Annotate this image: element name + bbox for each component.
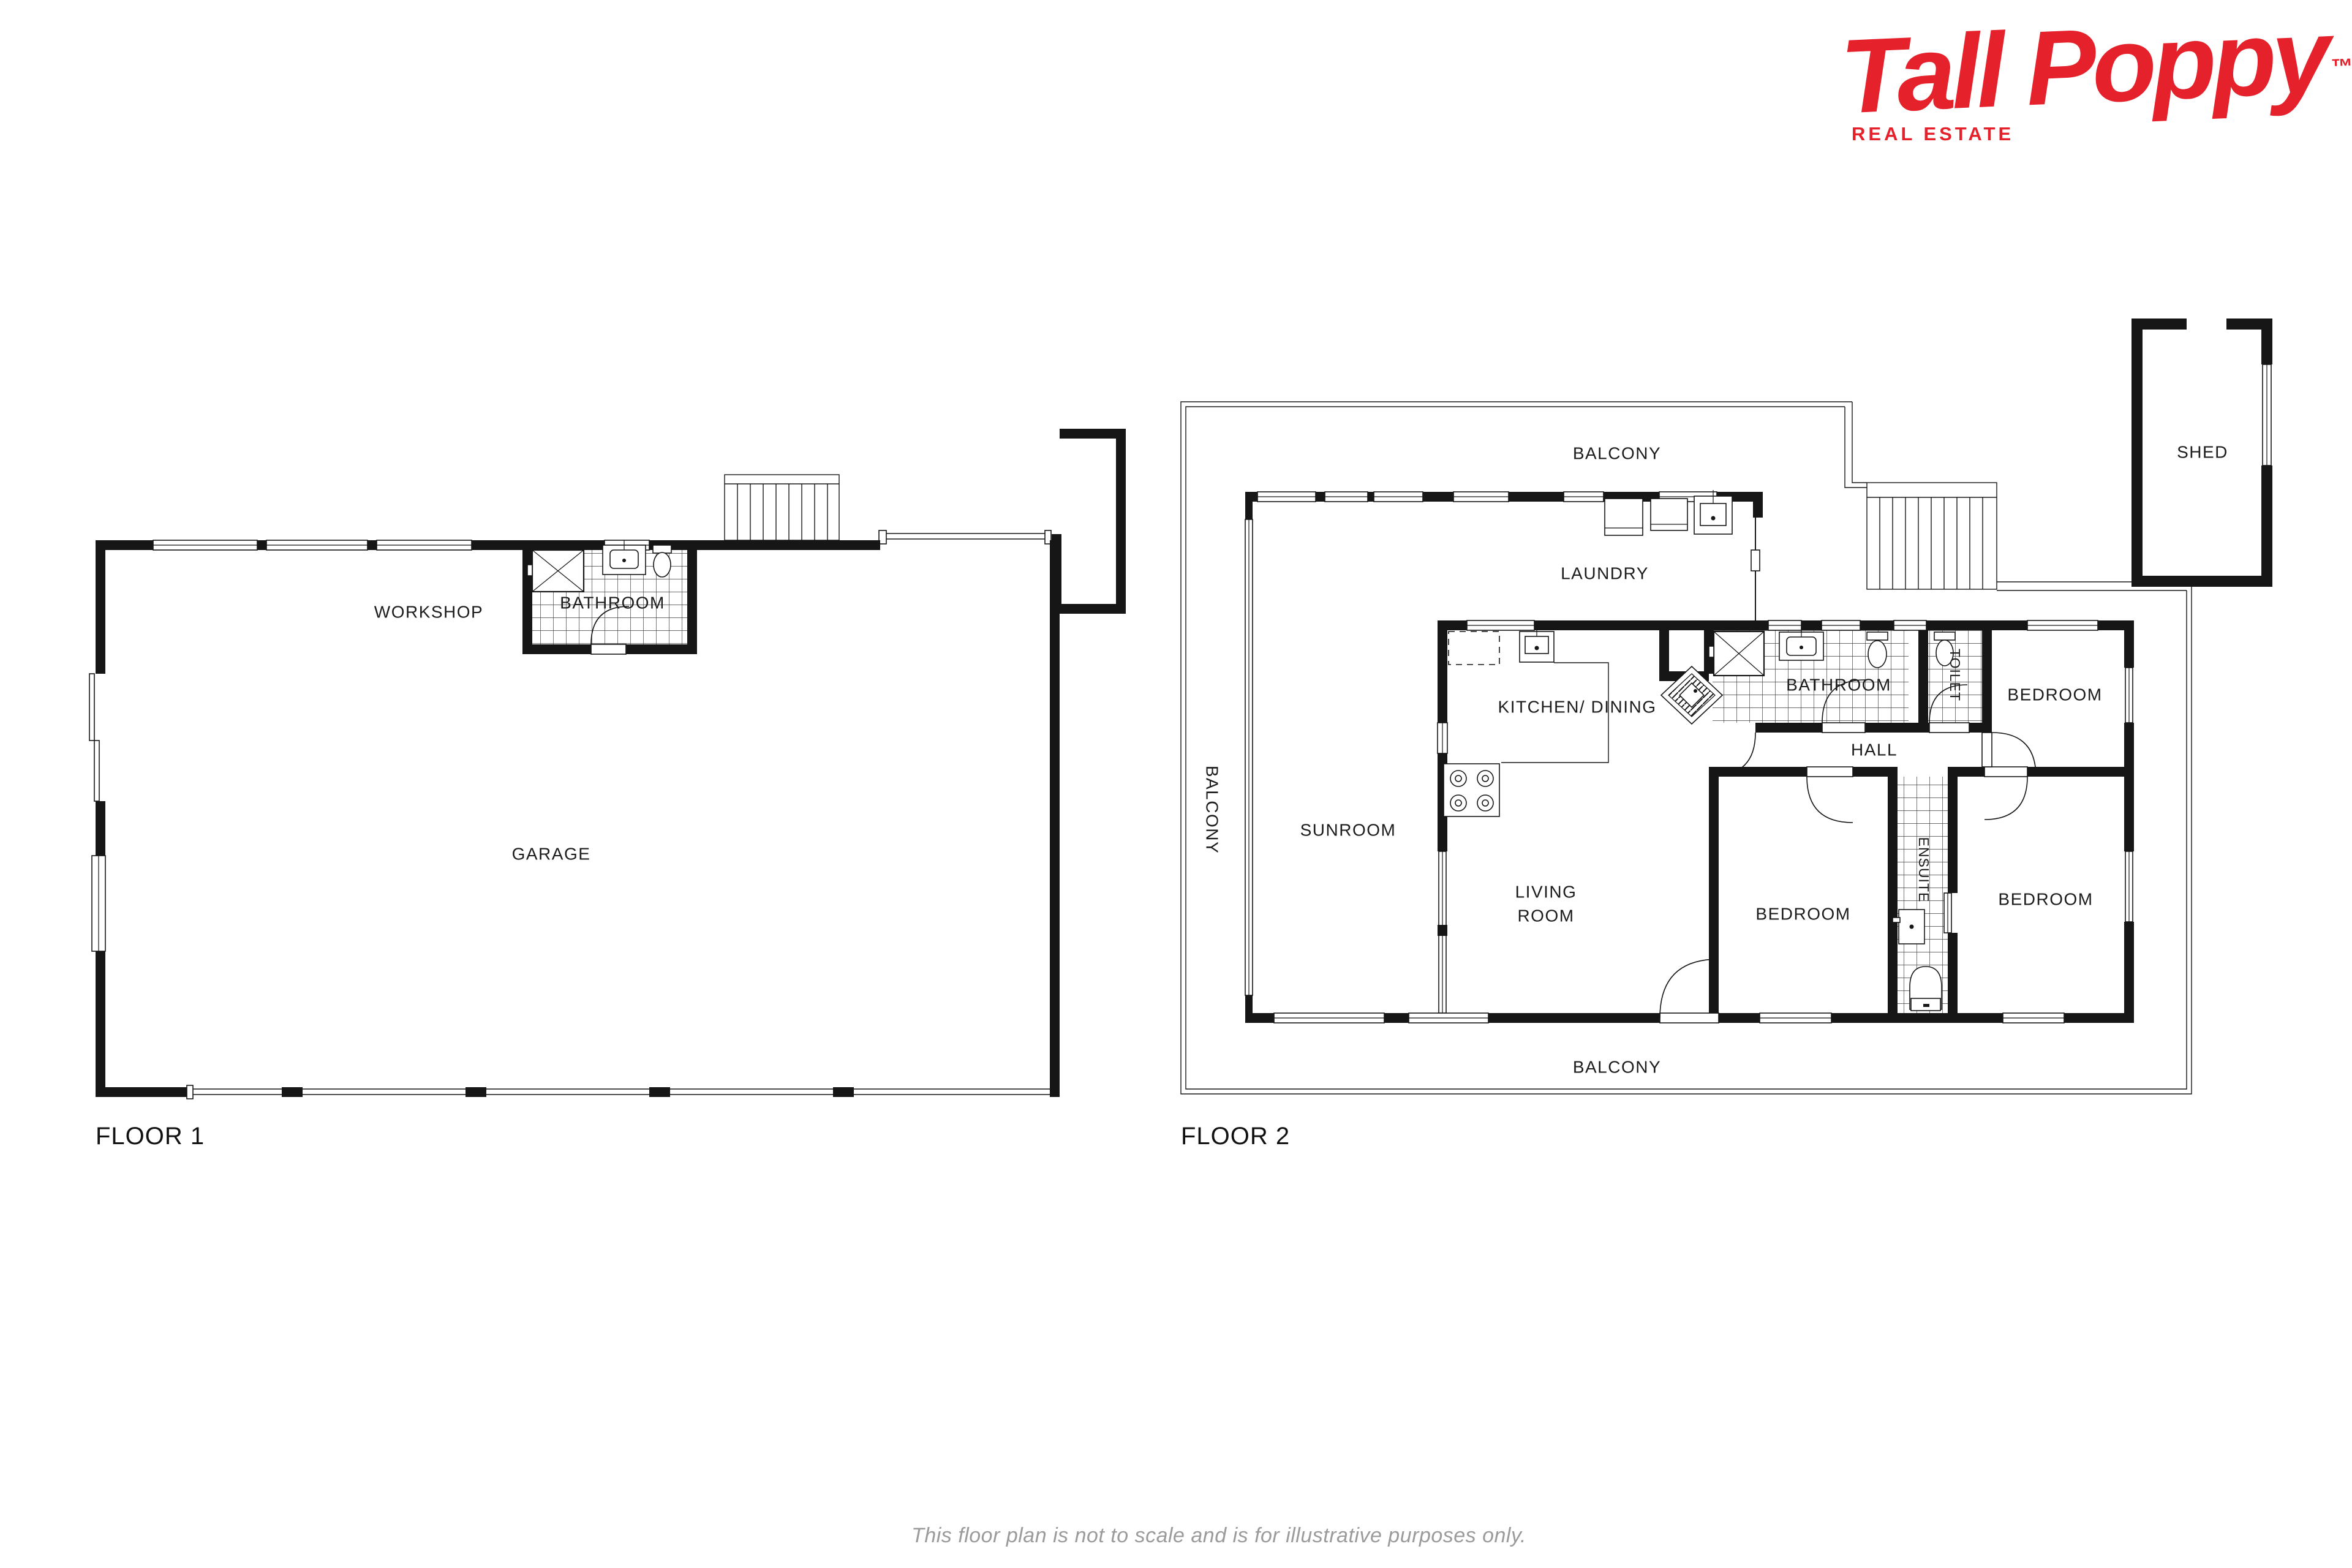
room-label-hall: HALL xyxy=(1851,740,1898,759)
floor1-title: FLOOR 1 xyxy=(96,1123,205,1150)
floor2-plan: SHED xyxy=(1181,318,2272,1150)
room-label-sunroom: SUNROOM xyxy=(1300,820,1396,839)
shower-icon xyxy=(527,550,584,592)
floor1-railing xyxy=(879,530,1051,544)
fridge-space-dashed xyxy=(1449,631,1499,665)
room-label-balcony-left: BALCONY xyxy=(1203,766,1222,854)
floor1-stairs-icon xyxy=(725,475,839,540)
room-label-balcony-bottom: BALCONY xyxy=(1573,1057,1661,1076)
ensuite-toilet-icon xyxy=(1910,967,1942,1011)
washing-machine-icon xyxy=(1605,499,1643,535)
room-label-bedroom-top: BEDROOM xyxy=(2007,685,2102,704)
stove-icon xyxy=(1444,764,1499,816)
room-label-shed: SHED xyxy=(2177,442,2228,461)
bathroom2-toilet-icon xyxy=(1867,632,1888,668)
room-label-bedroom-right: BEDROOM xyxy=(1998,889,2093,908)
dryer-icon xyxy=(1651,499,1687,530)
laundry-sink-icon xyxy=(1694,490,1732,534)
disclaimer-text: This floor plan is not to scale and is f… xyxy=(790,1524,1648,1548)
room-label-living-2: ROOM xyxy=(1517,906,1574,925)
floor1-porch xyxy=(1052,429,1126,614)
room-label-garage: GARAGE xyxy=(512,844,591,863)
shower2-icon xyxy=(1709,631,1764,676)
room-label-bedroom-center: BEDROOM xyxy=(1755,904,1850,923)
floor2-house-walls xyxy=(1245,492,2134,1023)
room-label-bathroom-f1: BATHROOM xyxy=(560,593,665,612)
room-label-workshop: WORKSHOP xyxy=(374,602,483,621)
floorplan-page: Tall Poppy™ REAL ESTATE xyxy=(0,0,2352,1568)
floor1-plan: WORKSHOP BATHROOM GARAGE FLOOR 1 xyxy=(89,429,1126,1150)
room-label-toilet: TOILET xyxy=(1947,649,1963,701)
room-label-kitchen-dining: KITCHEN/ DINING xyxy=(1498,697,1657,716)
toilet-icon xyxy=(653,545,671,577)
kitchen-fittings xyxy=(1444,625,1608,816)
kitchen-sink-icon xyxy=(1520,625,1554,662)
room-label-ensuite: ENSUITE xyxy=(1916,837,1932,903)
bathroom2-sink-icon xyxy=(1779,627,1823,660)
room-label-laundry: LAUNDRY xyxy=(1561,563,1649,582)
floor2-stairs-icon xyxy=(1867,483,1997,589)
floor2-title: FLOOR 2 xyxy=(1181,1123,1290,1150)
room-label-bathroom-f2: BATHROOM xyxy=(1786,675,1891,694)
shed: SHED xyxy=(2131,318,2272,587)
room-label-balcony-top: BALCONY xyxy=(1573,443,1661,462)
floorplans-drawing: WORKSHOP BATHROOM GARAGE FLOOR 1 xyxy=(0,0,2352,1568)
room-label-living-1: LIVING xyxy=(1515,882,1577,901)
sink-icon xyxy=(603,540,646,575)
